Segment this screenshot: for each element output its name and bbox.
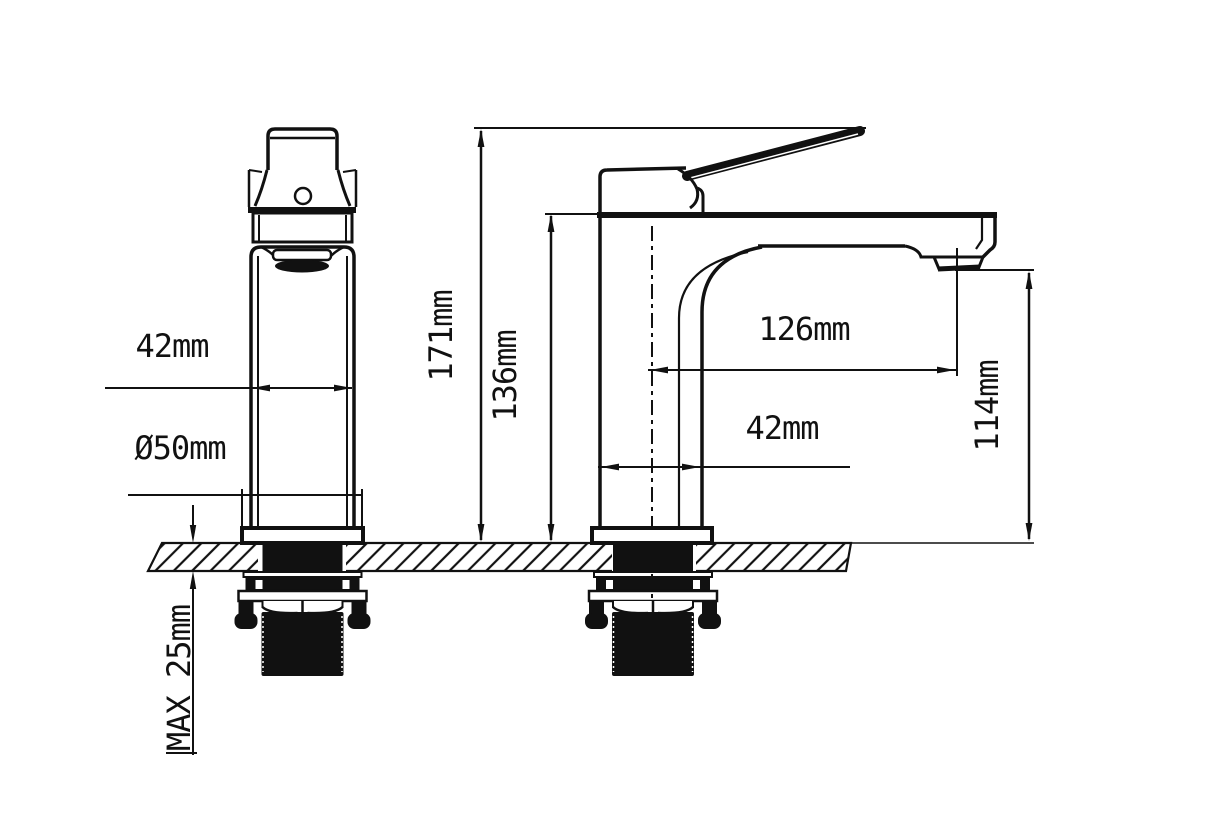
technical-drawing-canvas: 42mm Ø50mm 171mm 136mm: [0, 0, 1207, 839]
dimension-label-spout-reach: 126mm: [758, 310, 849, 348]
dimension-label-spout-top-height: 136mm: [486, 330, 524, 421]
dimension-spout-top-height: 136mm: [486, 214, 598, 542]
faucet-dimension-drawing: 42mm Ø50mm 171mm 136mm: [0, 0, 1207, 839]
countertop-section: [148, 542, 851, 573]
side-base-plate: [592, 528, 712, 543]
front-base-plate: [242, 528, 363, 543]
faucet-front-view: [242, 129, 363, 543]
dimension-label-overall-height: 171mm: [422, 290, 460, 381]
handle-indicator-dot: [295, 188, 311, 204]
dimension-label-base-diameter: Ø50mm: [134, 429, 225, 467]
faucet-side-view: [592, 131, 997, 600]
dimension-annotations: 42mm Ø50mm 171mm 136mm: [105, 128, 1034, 755]
dimension-label-max-thickness: MAX 25mm: [160, 605, 198, 751]
dimension-outlet-height: 114mm: [851, 270, 1034, 543]
dimension-body-depth: 42mm: [598, 409, 850, 470]
dimension-label-front-width: 42mm: [135, 327, 208, 365]
dimension-label-outlet-height: 114mm: [968, 360, 1006, 451]
dimension-label-body-depth: 42mm: [745, 409, 818, 447]
dimension-spout-reach: 126mm: [648, 248, 957, 376]
aerator-front: [275, 260, 329, 273]
handle-lever: [687, 131, 860, 176]
